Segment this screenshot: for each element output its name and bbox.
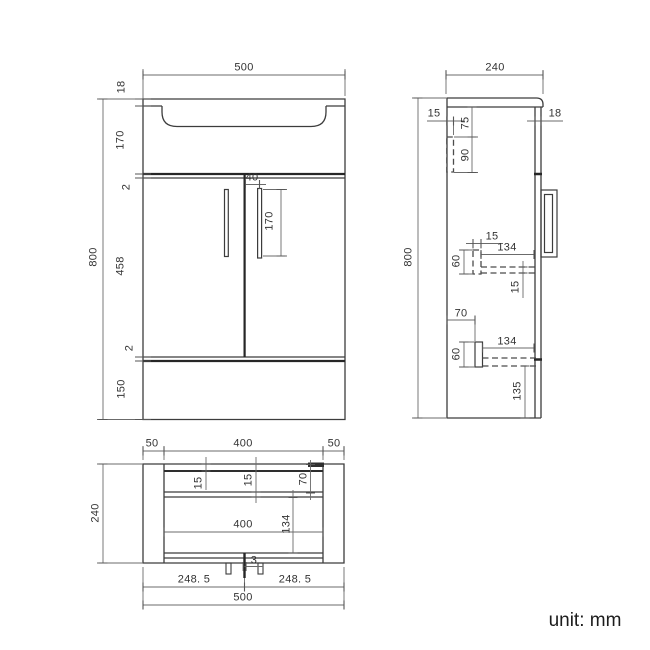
dim-front-overall-height: 800	[89, 247, 100, 266]
technical-drawing-canvas: 500 18 170 2 458 2 150 800 40 170 240 15…	[0, 0, 650, 650]
dim-front-bottom-gap: 2	[125, 345, 136, 351]
front-tick-marks	[99, 71, 346, 420]
side-handle-outer	[541, 190, 557, 257]
dim-front-counter-thickness: 18	[117, 81, 128, 94]
dim-front-overall-width: 500	[234, 63, 253, 74]
dim-side-overall-depth: 240	[485, 63, 504, 74]
dim-plan-inner-width: 400	[233, 520, 252, 531]
dim-side-bottom-clearance: 135	[513, 381, 524, 400]
dim-plan-overall-width: 500	[233, 593, 252, 604]
front-right-door-handle	[258, 189, 262, 259]
dim-plan-half-width-left: 248. 5	[178, 575, 210, 586]
dim-side-back-rail-height: 90	[461, 149, 472, 162]
dim-plan-inner-depth: 134	[282, 514, 293, 533]
dim-side-rail-top-offset: 75	[461, 117, 472, 130]
dim-plan-divider-gap: 3	[251, 556, 257, 567]
dim-plan-half-width-right: 248. 5	[279, 575, 311, 586]
front-left-door-handle	[225, 190, 229, 257]
dim-plan-left-overhang: 50	[146, 439, 159, 450]
dim-side-door-thickness: 18	[549, 109, 562, 120]
dim-plan-overall-depth: 240	[91, 503, 102, 522]
dim-front-door-height: 458	[116, 256, 127, 275]
side-lower-batten	[475, 342, 483, 367]
dim-side-shelf-thickness: 15	[511, 281, 522, 294]
dim-side-upper-batten-height: 60	[452, 255, 463, 268]
dim-plan-back-panel-thickness: 15	[194, 477, 205, 490]
front-view-lines	[97, 69, 345, 420]
unit-note: unit: mm	[549, 610, 622, 632]
dim-side-upper-shelf-depth: 134	[497, 243, 516, 254]
plan-left-tab	[226, 563, 231, 574]
dim-side-back-rail-thickness: 15	[428, 109, 441, 120]
side-handle-inner	[545, 195, 553, 253]
dim-front-basin-height: 170	[116, 130, 127, 149]
dim-front-top-gap: 2	[122, 184, 133, 190]
side-tick-marks	[414, 71, 544, 419]
side-hidden-lines	[447, 137, 537, 366]
dim-front-plinth-height: 150	[117, 379, 128, 398]
dim-front-handle-length: 170	[265, 211, 276, 230]
dim-plan-right-overhang: 50	[328, 439, 341, 450]
front-heavy-lines	[143, 174, 345, 361]
dim-front-handle-inset: 40	[246, 173, 259, 184]
dim-side-lower-batten-offset: 70	[455, 309, 468, 320]
dim-side-overall-height: 800	[404, 247, 415, 266]
plan-right-tab	[258, 563, 263, 574]
dim-plan-corner-block-offset: 70	[299, 473, 310, 486]
side-view-lines	[412, 70, 563, 418]
dim-plan-body-width: 400	[233, 439, 252, 450]
drawing-linework	[0, 0, 650, 650]
dim-plan-rail-thickness: 15	[244, 474, 255, 487]
dim-side-lower-batten-height: 60	[452, 348, 463, 361]
front-dimension-lines	[97, 69, 345, 420]
dim-side-lower-shelf-depth: 134	[497, 337, 516, 348]
